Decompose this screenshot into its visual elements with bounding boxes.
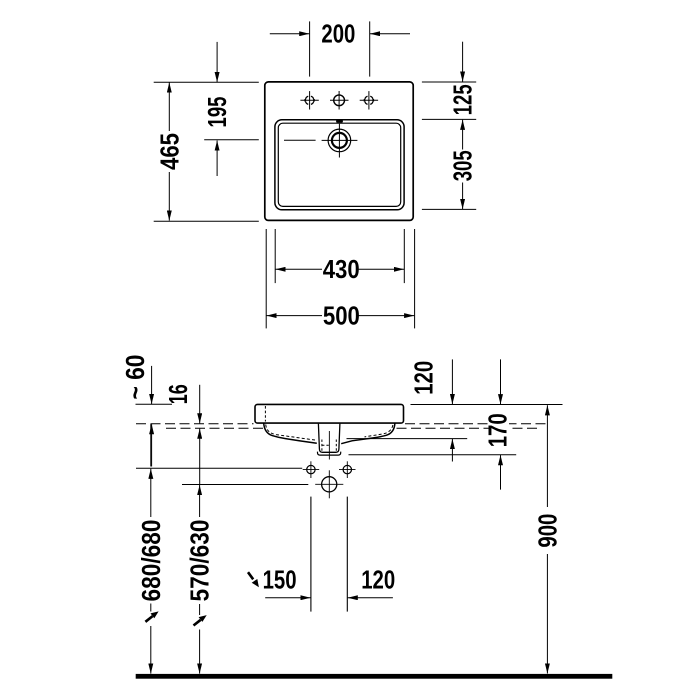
svg-text:~ 60: ~ 60 xyxy=(120,355,150,400)
svg-text:500: 500 xyxy=(323,300,360,330)
svg-text:570/630: 570/630 xyxy=(185,520,215,602)
svg-text:195: 195 xyxy=(202,97,232,128)
svg-text:200: 200 xyxy=(321,18,355,48)
svg-text:465: 465 xyxy=(154,133,184,170)
svg-text:305: 305 xyxy=(448,150,478,181)
svg-text:125: 125 xyxy=(448,84,478,115)
svg-text:430: 430 xyxy=(323,254,360,284)
svg-text:170: 170 xyxy=(483,413,513,447)
svg-text:900: 900 xyxy=(532,514,562,548)
svg-text:150: 150 xyxy=(263,564,297,594)
svg-text:680/680: 680/680 xyxy=(136,520,166,602)
svg-text:16: 16 xyxy=(163,384,193,404)
svg-text:120: 120 xyxy=(409,361,439,395)
svg-text:120: 120 xyxy=(361,564,395,594)
